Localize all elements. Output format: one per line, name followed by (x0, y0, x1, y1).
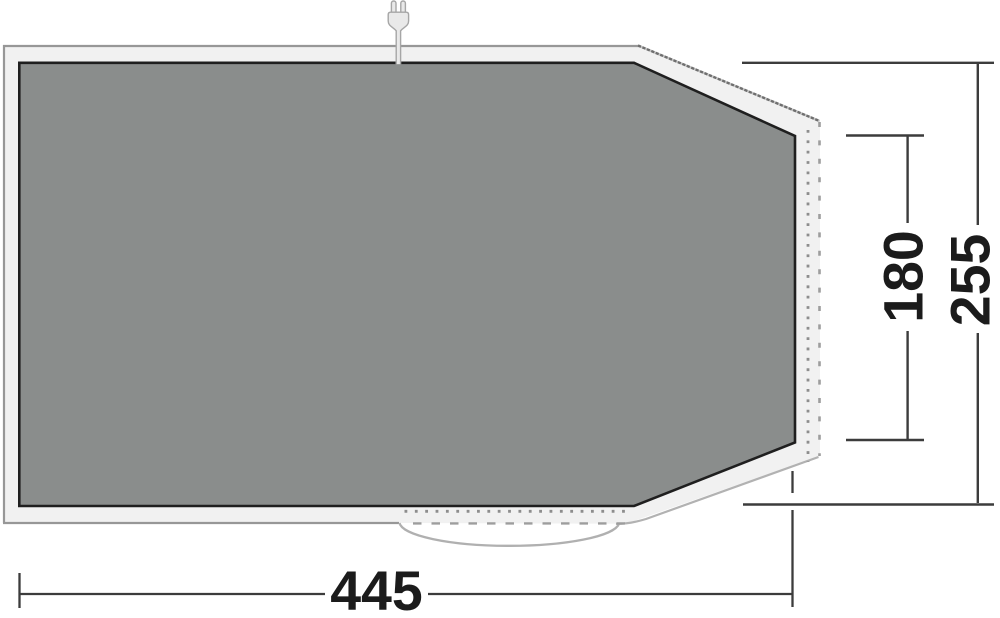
svg-text:180: 180 (873, 230, 935, 323)
svg-text:255: 255 (940, 234, 1000, 327)
svg-text:445: 445 (330, 560, 423, 618)
